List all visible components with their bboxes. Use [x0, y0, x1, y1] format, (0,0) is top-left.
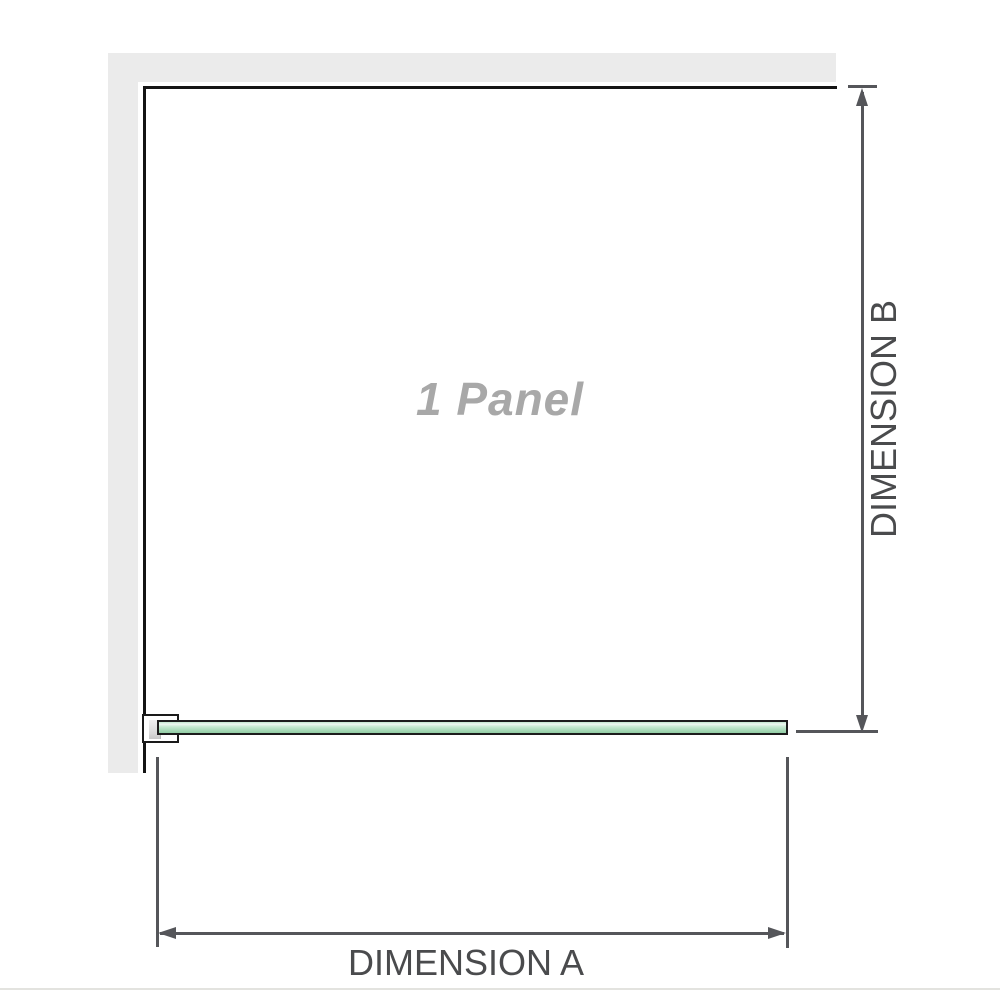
panel-count-label: 1 Panel [300, 368, 700, 430]
glass-panel [157, 720, 788, 735]
arrow-left-icon [158, 927, 176, 939]
room-outline-top-line [143, 86, 837, 89]
wall-top [108, 53, 836, 82]
arrow-up-icon [856, 88, 868, 106]
arrow-right-icon [768, 927, 786, 939]
room-outline-left-line [143, 86, 146, 773]
dimension-a-extension-left [156, 757, 159, 947]
wall-left [108, 53, 138, 773]
panel-dimension-diagram: 1 Panel DIMENSION B DIMENSION A [0, 0, 1000, 1000]
dimension-b-label: DIMENSION B [864, 269, 904, 569]
dimension-a-extension-right [786, 757, 789, 948]
dimension-b-tick-bottom [796, 730, 878, 733]
footer-separator-line [0, 988, 1000, 990]
dimension-a-line [160, 932, 784, 935]
dimension-a-label: DIMENSION A [266, 944, 666, 982]
